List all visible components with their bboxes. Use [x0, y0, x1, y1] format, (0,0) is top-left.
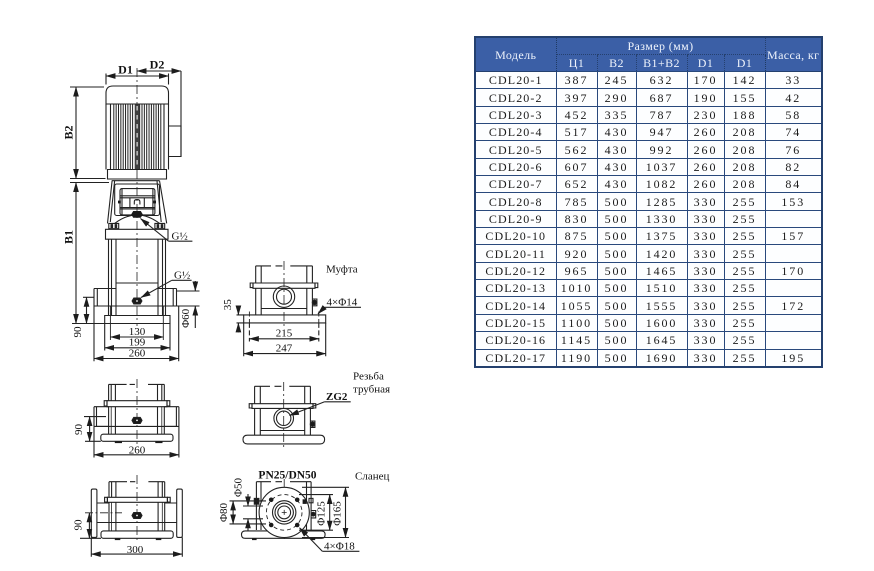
svg-text:260: 260 — [129, 347, 146, 359]
svg-text:B1: B1 — [62, 230, 76, 244]
svg-text:Φ125: Φ125 — [316, 501, 328, 526]
svg-text:4×Φ18: 4×Φ18 — [324, 540, 355, 552]
svg-text:300: 300 — [127, 544, 144, 556]
svg-text:Муфта: Муфта — [326, 264, 358, 276]
svg-text:90: 90 — [73, 424, 85, 436]
svg-text:Φ80: Φ80 — [218, 502, 230, 522]
svg-text:215: 215 — [276, 328, 293, 340]
svg-text:ZG2: ZG2 — [326, 391, 348, 403]
svg-text:D1: D1 — [118, 63, 133, 77]
svg-text:G½: G½ — [174, 270, 190, 282]
svg-text:247: 247 — [276, 342, 293, 354]
svg-text:B2: B2 — [62, 125, 76, 139]
svg-text:Φ60: Φ60 — [180, 308, 192, 328]
svg-text:Сланец: Сланец — [355, 471, 389, 483]
svg-text:трубная: трубная — [353, 384, 390, 396]
svg-text:90: 90 — [73, 519, 85, 531]
svg-text:35: 35 — [222, 299, 234, 311]
svg-text:Резьба: Резьба — [353, 371, 384, 383]
svg-text:Φ165: Φ165 — [332, 501, 344, 526]
svg-text:D2: D2 — [150, 58, 165, 72]
svg-text:4×Φ14: 4×Φ14 — [327, 296, 358, 308]
svg-text:260: 260 — [129, 445, 146, 457]
svg-text:PN25/DN50: PN25/DN50 — [258, 470, 316, 482]
svg-text:G½: G½ — [172, 230, 188, 242]
svg-text:90: 90 — [72, 326, 84, 338]
svg-text:Φ50: Φ50 — [233, 477, 245, 497]
